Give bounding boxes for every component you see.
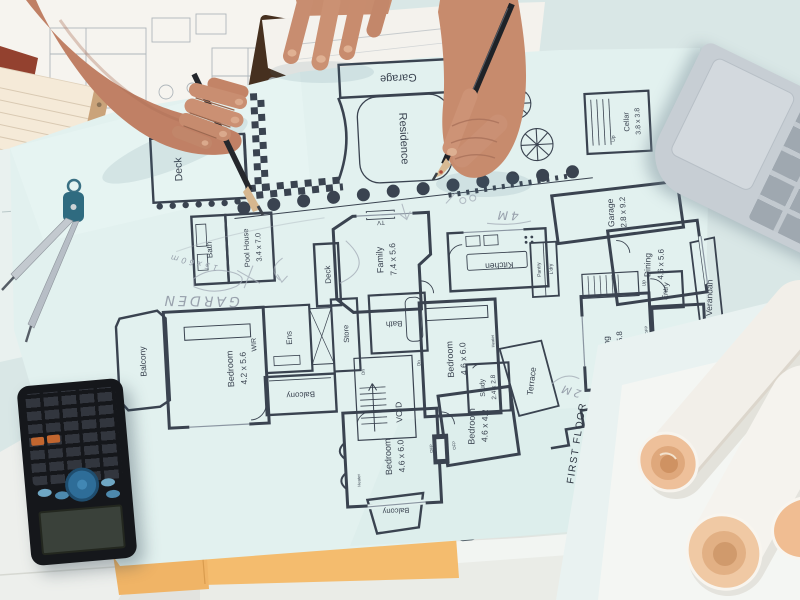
label-heater-2: Heater — [356, 473, 362, 486]
room-dims-pool-house: 3.4 x 7.0 — [253, 233, 263, 262]
room-label-entry: Entry — [660, 282, 671, 300]
room-dims-dining: 4.6 x 5.6 — [656, 248, 666, 279]
handwriting-4m: 4M — [494, 208, 519, 223]
room-label-balcony-mid: Balcony — [286, 390, 315, 400]
room-label-kitchen: Kitchen — [485, 260, 514, 271]
room-dims-bedroom-3: 4.6 x 6.0 — [395, 439, 407, 472]
room-dims-bedroom-master: 4.2 x 5.6 — [237, 351, 249, 384]
label-heater-1: Heater — [490, 334, 496, 347]
calculator-blue-key-3 — [101, 478, 116, 487]
room-label-pantry: Pantry — [536, 262, 543, 277]
label-ofp-bed3: OFP — [429, 444, 434, 453]
room-label-bedroom-2: Bedroom — [444, 341, 456, 378]
label-ofp-bed4: OFP — [451, 441, 456, 450]
room-dims-family: 7.4 x 5.6 — [387, 242, 399, 275]
room-label-bedroom-master: Bedroom — [224, 350, 236, 387]
room-label-verandah: Verandah — [704, 279, 715, 316]
room-label-garage: Garage — [605, 198, 616, 227]
room-dims-bedroom-4: 4.6 x 4.2 — [479, 409, 490, 442]
room-dims-bedroom-2: 4.6 x 6.0 — [457, 342, 469, 375]
calculator-orange-key-2 — [47, 434, 61, 443]
site-label-garage: Garage — [380, 71, 417, 85]
room-label-bath-first: Bath — [386, 319, 403, 329]
room-dims-study-first: 2.4 x 2.8 — [490, 374, 498, 400]
room-dims-cellar: 3.8 x 3.8 — [634, 108, 642, 135]
label-tv: TV — [377, 219, 385, 225]
room-label-dining: Dining — [642, 253, 652, 278]
room-label-wir: WIR — [251, 338, 259, 352]
room-label-bedroom-4: Bedroom — [466, 408, 477, 445]
label-up-cellar: Up — [611, 135, 617, 142]
room-label-balcony-bottom: Balcony — [382, 506, 409, 516]
room-label-ensuite: Ens — [284, 331, 294, 345]
room-dims-garage: 2.8 x 9.2 — [618, 196, 629, 228]
room-label-store: Store — [341, 325, 351, 343]
room-label-family: Family — [374, 246, 385, 273]
room-label-void: VOID — [393, 402, 404, 423]
room-label-bedroom-3: Bedroom — [382, 438, 394, 475]
photo-scene: Garage Residence Deck — [0, 0, 800, 600]
calculator-blue-key-4 — [106, 489, 121, 498]
room-label-deck-family: Deck — [323, 264, 333, 284]
label-dn-2: Dn — [416, 360, 421, 367]
room-label-study-first: Study — [479, 378, 487, 397]
label-up-stairs: Up — [641, 280, 647, 287]
room-label-cellar: Cellar — [621, 111, 631, 132]
calculator-display — [38, 504, 126, 555]
scientific-calculator — [16, 378, 137, 567]
calculator-orange-key — [31, 437, 45, 446]
handwriting-garden: GARDEN — [161, 292, 240, 309]
room-label-balcony-left: Balcony — [137, 345, 149, 376]
label-dn-1: Dn — [360, 369, 365, 376]
room-label-bath-pool: Bath — [205, 241, 215, 258]
calculator-blue-key — [37, 488, 52, 497]
room-label-laundry: L'dry — [548, 263, 555, 274]
